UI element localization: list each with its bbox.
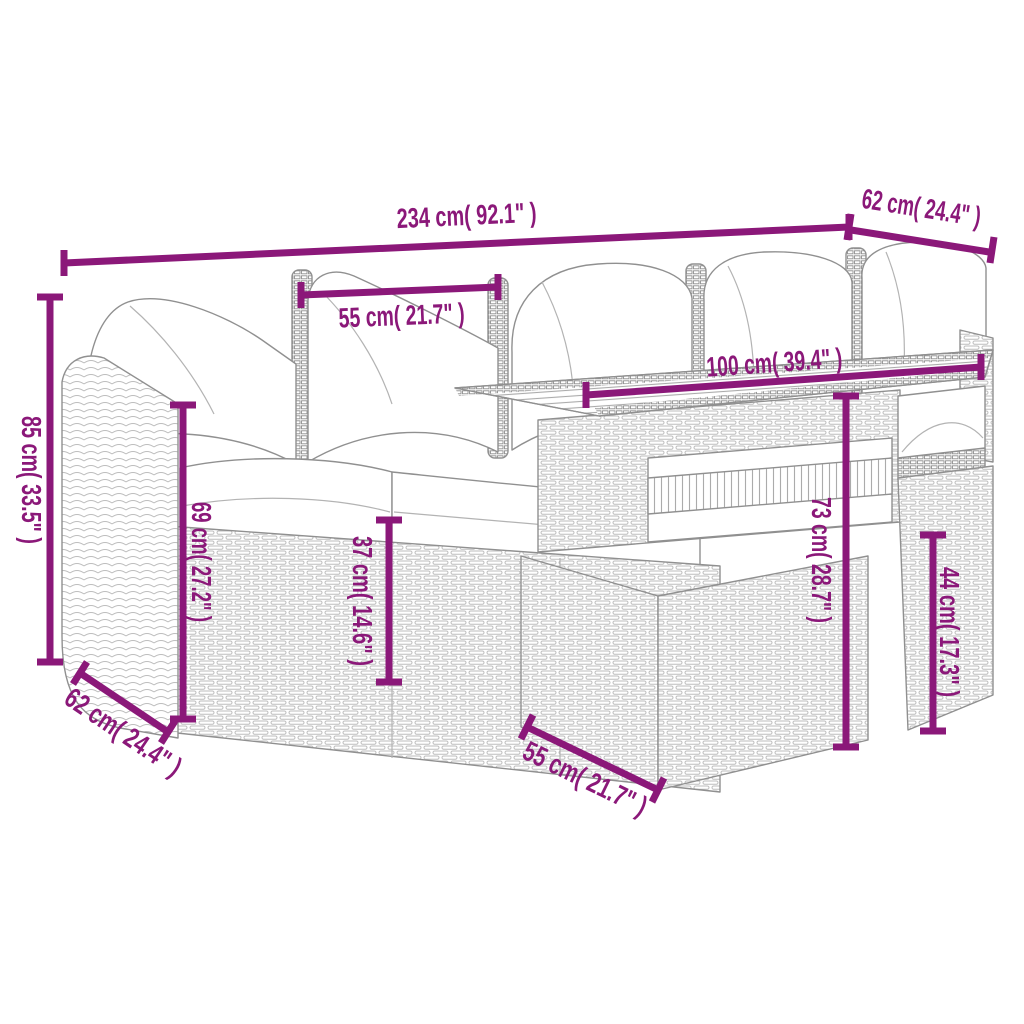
dimension-label-seat-width-top: 55 cm( 21.7" ) [338,297,465,333]
left-armrest [62,356,178,738]
dimension-label-total-width: 234 cm( 92.1" ) [396,197,537,234]
dimension-label-total-height: 85 cm( 33.5" ) [16,416,47,544]
dimension-label-side-seat-height: 44 cm( 17.3" ) [934,567,965,697]
dimension-label-back-height: 69 cm( 27.2" ) [186,502,217,622]
dimension-label-seat-height: 37 cm( 14.6" ) [347,536,378,666]
dimension-label-table-height: 73 cm( 28.7" ) [806,497,837,623]
dimension-total-height: 85 cm( 33.5" ) [16,297,63,662]
furniture-dimension-drawing: 234 cm( 92.1" ) 62 cm( 24.4" ) 55 cm( 21… [0,0,1024,1024]
dimension-label-depth-top-right: 62 cm( 24.4" ) [860,183,983,232]
product-dimension-diagram: 234 cm( 92.1" ) 62 cm( 24.4" ) 55 cm( 21… [0,0,1024,1024]
